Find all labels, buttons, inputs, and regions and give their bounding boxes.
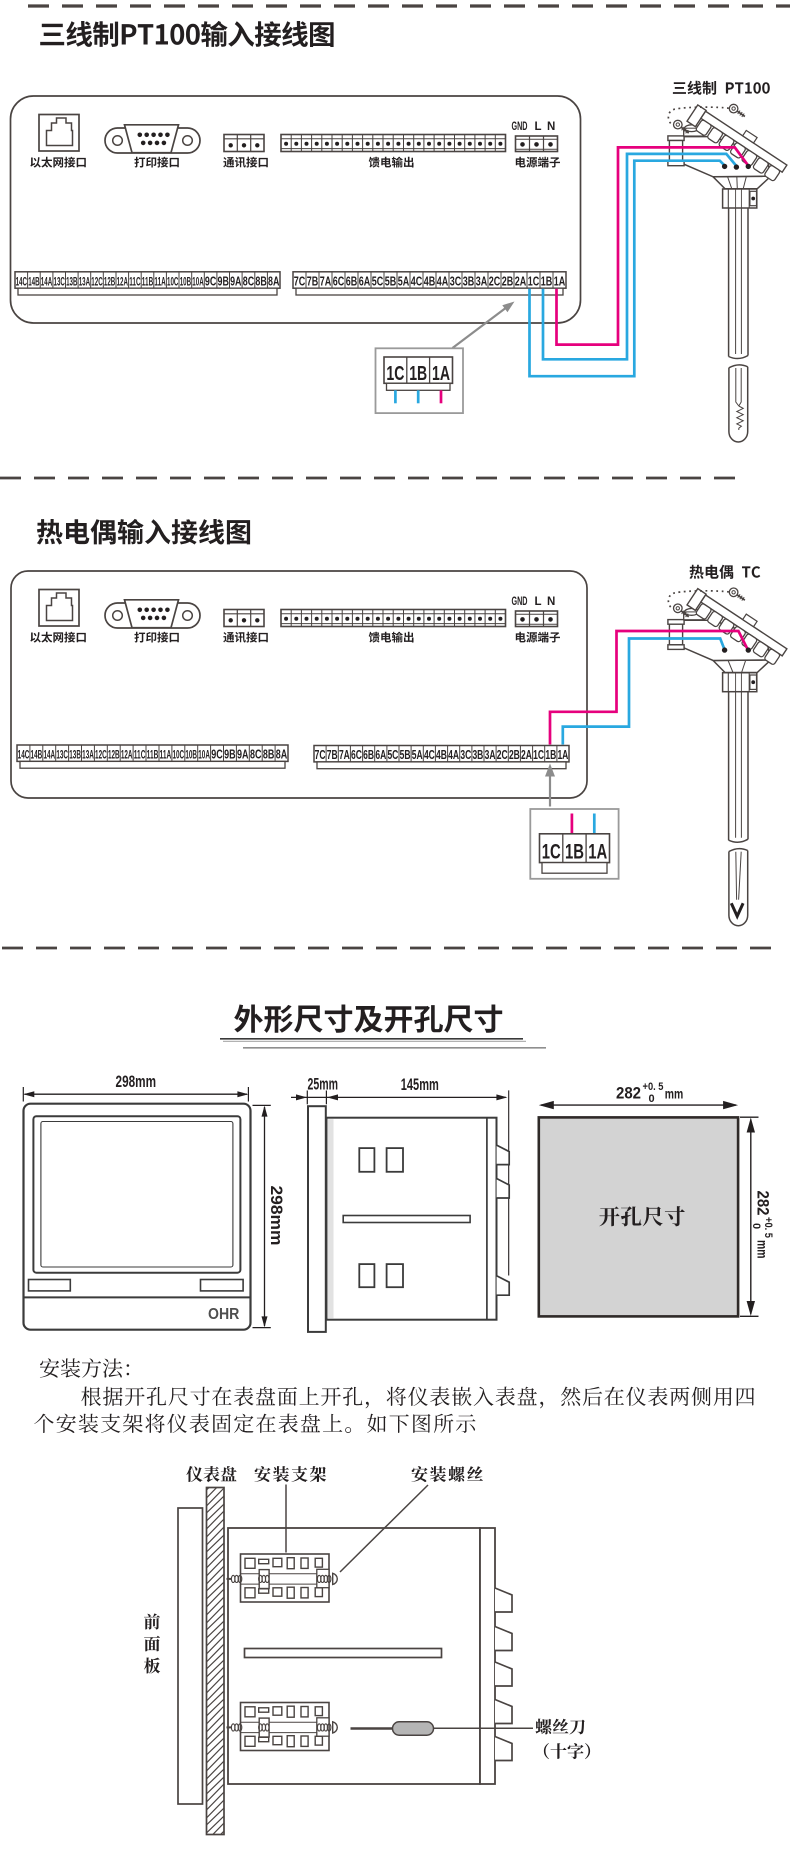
svg-text:11C: 11C	[129, 276, 140, 288]
svg-text:12A: 12A	[117, 276, 128, 288]
svg-text:8C: 8C	[250, 747, 262, 762]
svg-text:5A: 5A	[412, 747, 423, 762]
svg-text:7A: 7A	[320, 273, 332, 288]
svg-text:2C: 2C	[497, 747, 508, 762]
svg-text:2A: 2A	[521, 747, 532, 762]
svg-text:5C: 5C	[372, 273, 384, 288]
svg-text:14A: 14A	[41, 276, 52, 288]
svg-text:12B: 12B	[104, 276, 115, 288]
svg-text:8B: 8B	[263, 747, 275, 762]
svg-text:mm: mm	[755, 1240, 771, 1259]
svg-text:12A: 12A	[121, 750, 133, 762]
svg-text:11B: 11B	[147, 750, 159, 762]
svg-text:14B: 14B	[28, 276, 39, 288]
svg-text:11B: 11B	[142, 276, 153, 288]
svg-text:6B: 6B	[346, 273, 358, 288]
svg-text:13A: 13A	[82, 750, 94, 762]
svg-text:3A: 3A	[476, 273, 488, 288]
svg-text:1A: 1A	[557, 747, 568, 762]
svg-text:2C: 2C	[489, 273, 501, 288]
svg-text:+0. 5: +0. 5	[762, 1217, 774, 1238]
svg-text:11A: 11A	[160, 750, 172, 762]
svg-text:2B: 2B	[502, 273, 514, 288]
svg-text:1C: 1C	[528, 273, 540, 288]
svg-text:13B: 13B	[69, 750, 81, 762]
svg-text:6B: 6B	[363, 747, 374, 762]
svg-text:7C: 7C	[294, 273, 306, 288]
svg-text:12B: 12B	[108, 750, 120, 762]
svg-text:8A: 8A	[268, 273, 280, 288]
svg-text:7B: 7B	[307, 273, 319, 288]
svg-text:5A: 5A	[398, 273, 410, 288]
svg-text:3A: 3A	[485, 747, 496, 762]
svg-text:9C: 9C	[205, 273, 217, 288]
svg-text:4C: 4C	[411, 273, 423, 288]
svg-text:3B: 3B	[463, 273, 475, 288]
svg-text:11C: 11C	[134, 750, 146, 762]
svg-text:282: 282	[616, 1083, 641, 1102]
svg-text:6C: 6C	[333, 273, 345, 288]
svg-text:4B: 4B	[424, 273, 436, 288]
svg-text:1B: 1B	[545, 747, 556, 762]
svg-text:4C: 4C	[424, 747, 435, 762]
svg-text:14B: 14B	[31, 750, 43, 762]
svg-text:145mm: 145mm	[401, 1076, 439, 1094]
svg-text:25mm: 25mm	[308, 1076, 339, 1094]
svg-text:10C: 10C	[167, 276, 178, 288]
svg-text:9B: 9B	[218, 273, 229, 288]
svg-text:2B: 2B	[509, 747, 520, 762]
svg-text:10A: 10A	[198, 750, 210, 762]
svg-text:14C: 14C	[16, 276, 27, 288]
svg-text:3B: 3B	[472, 747, 483, 762]
svg-text:7B: 7B	[327, 747, 338, 762]
svg-text:1A: 1A	[432, 363, 450, 385]
svg-text:9A: 9A	[237, 747, 249, 762]
svg-text:11A: 11A	[154, 276, 165, 288]
svg-text:6C: 6C	[351, 747, 362, 762]
svg-text:+0. 5: +0. 5	[643, 1081, 664, 1093]
svg-text:9B: 9B	[224, 747, 236, 762]
svg-text:8A: 8A	[276, 747, 288, 762]
svg-text:10B: 10B	[185, 750, 197, 762]
svg-text:2A: 2A	[515, 273, 527, 288]
svg-text:4B: 4B	[436, 747, 447, 762]
svg-text:3C: 3C	[450, 273, 462, 288]
svg-text:0: 0	[649, 1093, 655, 1105]
svg-text:OHR: OHR	[208, 1306, 240, 1323]
svg-text:13B: 13B	[66, 276, 77, 288]
svg-text:1A: 1A	[554, 273, 566, 288]
svg-text:3C: 3C	[460, 747, 471, 762]
svg-text:14C: 14C	[18, 750, 30, 762]
svg-text:9A: 9A	[230, 273, 242, 288]
svg-text:5B: 5B	[385, 273, 397, 288]
svg-text:13C: 13C	[54, 276, 65, 288]
svg-text:1B: 1B	[541, 273, 553, 288]
svg-text:1A: 1A	[588, 841, 607, 864]
svg-text:7C: 7C	[315, 747, 326, 762]
svg-text:9C: 9C	[211, 747, 223, 762]
svg-text:298mm: 298mm	[116, 1073, 157, 1091]
svg-text:13C: 13C	[56, 750, 68, 762]
svg-text:6A: 6A	[375, 747, 386, 762]
svg-text:1B: 1B	[409, 363, 427, 385]
svg-text:1B: 1B	[565, 841, 584, 864]
svg-text:1C: 1C	[542, 841, 561, 864]
svg-text:6A: 6A	[359, 273, 371, 288]
svg-text:1C: 1C	[533, 747, 544, 762]
svg-text:14A: 14A	[43, 750, 55, 762]
svg-text:5C: 5C	[387, 747, 398, 762]
svg-text:282: 282	[754, 1191, 773, 1216]
svg-text:4A: 4A	[437, 273, 449, 288]
svg-text:10B: 10B	[180, 276, 191, 288]
svg-text:5B: 5B	[400, 747, 411, 762]
svg-text:10A: 10A	[192, 276, 203, 288]
svg-text:10C: 10C	[172, 750, 184, 762]
svg-text:7A: 7A	[339, 747, 350, 762]
svg-text:0: 0	[750, 1223, 762, 1229]
svg-text:mm: mm	[665, 1085, 684, 1101]
svg-text:12C: 12C	[95, 750, 107, 762]
svg-text:8C: 8C	[243, 273, 255, 288]
svg-text:13A: 13A	[79, 276, 90, 288]
svg-text:1C: 1C	[386, 363, 404, 385]
svg-text:8B: 8B	[255, 273, 266, 288]
svg-text:298mm: 298mm	[267, 1186, 285, 1246]
svg-text:12C: 12C	[91, 276, 102, 288]
svg-text:4A: 4A	[448, 747, 459, 762]
